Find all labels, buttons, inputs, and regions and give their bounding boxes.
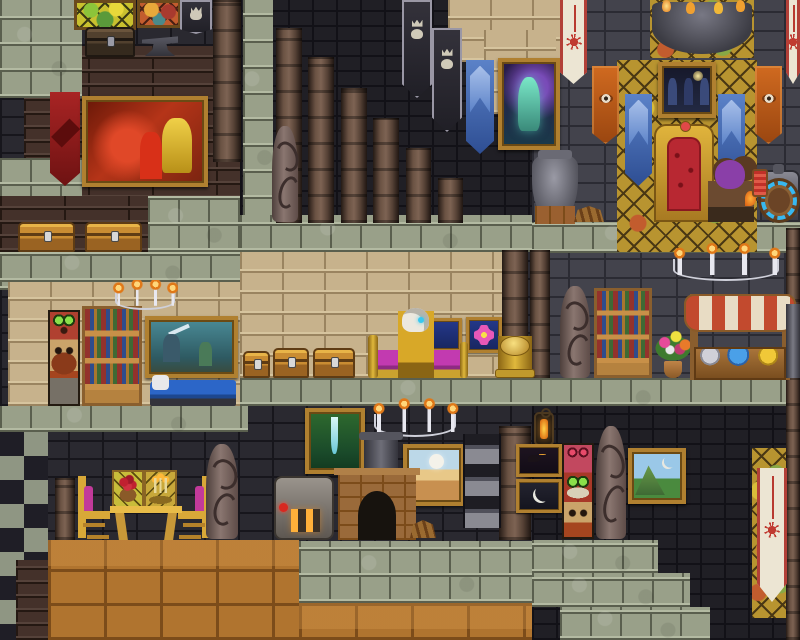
white-sun-banner xyxy=(757,468,787,602)
metal-shelf-blocks xyxy=(463,434,501,528)
painting-knight-vs-worm xyxy=(82,96,208,187)
orange-eye-banner xyxy=(755,66,782,144)
golden-table xyxy=(110,506,182,540)
tiki-totem xyxy=(48,310,80,406)
painting-mountain-lake xyxy=(628,448,686,504)
cauldron-furnace[interactable] xyxy=(532,154,578,222)
wall-slab-left-upper xyxy=(0,0,82,98)
game-scene xyxy=(0,0,800,640)
wood-column-stair-5 xyxy=(406,148,431,223)
steam-boiler[interactable] xyxy=(274,476,334,540)
painting-necromancer xyxy=(498,58,560,150)
painting-warrior-band xyxy=(658,62,716,118)
gargoyle-statue xyxy=(596,426,626,539)
gold-chest[interactable] xyxy=(85,222,142,252)
royal-throne[interactable] xyxy=(654,124,714,222)
floor-slab-left-band xyxy=(0,252,240,282)
gargoyle-statue xyxy=(206,444,238,539)
red-banner xyxy=(50,92,80,186)
stained-glass-panel-roses xyxy=(112,470,144,508)
silver-chandelier xyxy=(668,243,784,289)
painting-crescent-moon xyxy=(516,479,562,513)
wood-column-stair-6 xyxy=(438,178,463,223)
npc-antler-villager[interactable] xyxy=(708,160,754,222)
painting-dark-bird xyxy=(516,444,562,477)
wood-column-stair-4 xyxy=(373,118,399,223)
floor-slab-left-room xyxy=(0,406,248,432)
flower-bouquet-pot xyxy=(654,330,692,378)
market-stall-gems[interactable] xyxy=(690,294,790,380)
stained-glass-panel-candelabra xyxy=(144,470,177,508)
gold-chest-small[interactable] xyxy=(243,351,270,378)
wood-column xyxy=(213,0,241,162)
painting-jungle-waterfall xyxy=(305,408,365,474)
blue-banner xyxy=(625,94,652,186)
white-sun-banner-cut xyxy=(786,0,800,84)
wood-column-stair-3 xyxy=(341,88,367,223)
painting-undersea-battle xyxy=(145,316,238,378)
gargoyle-statue xyxy=(272,126,298,222)
gargoyle-statue xyxy=(560,286,590,378)
iron-chandelier xyxy=(652,2,752,54)
black-banner-small xyxy=(180,0,212,34)
wooden-bookshelf xyxy=(82,306,142,406)
blue-bed[interactable] xyxy=(150,380,236,406)
brick-fireplace[interactable] xyxy=(338,468,416,540)
wood-column-right-edge xyxy=(786,228,800,640)
gold-chest[interactable] xyxy=(313,348,355,378)
stained-glass-window-orange xyxy=(137,0,181,28)
floor-slab-bottom-center xyxy=(299,541,532,603)
blue-banner xyxy=(466,60,494,154)
player-gold-armor xyxy=(398,308,434,378)
tiki-totem xyxy=(562,443,594,539)
wood-column-divider-2 xyxy=(530,250,550,378)
wall-planks-bottom-left xyxy=(16,560,48,640)
orange-eye-banner xyxy=(592,66,619,144)
skull-banner xyxy=(402,0,432,98)
gold-chest[interactable] xyxy=(273,348,309,378)
silver-chandelier xyxy=(112,280,178,316)
wooden-bookshelf xyxy=(594,288,652,378)
shadow-chest[interactable] xyxy=(85,27,135,57)
sharpening-station[interactable] xyxy=(750,172,800,222)
wood-column-dining xyxy=(55,478,75,540)
wood-column-stair-2 xyxy=(308,57,334,223)
painting-pink-flower xyxy=(466,317,502,353)
gold-lamp xyxy=(498,336,532,378)
skull-banner xyxy=(432,28,462,132)
floor-mudbrick-center xyxy=(299,603,532,640)
white-sun-banner xyxy=(560,0,587,84)
floor-slab-main xyxy=(240,378,800,406)
gold-chest[interactable] xyxy=(18,222,75,252)
pillar-slab xyxy=(243,0,273,225)
stair-slab-2 xyxy=(532,573,690,607)
wall-slab-mid-left xyxy=(148,196,240,252)
floor-mudbrick-left xyxy=(48,540,299,640)
stair-slab-3 xyxy=(560,607,710,640)
pipe-machine xyxy=(786,304,800,378)
hanging-lantern xyxy=(534,412,554,446)
golden-chair[interactable] xyxy=(78,476,110,538)
stained-glass-window-yellow-green xyxy=(74,0,136,30)
stair-slab-1 xyxy=(532,540,658,573)
